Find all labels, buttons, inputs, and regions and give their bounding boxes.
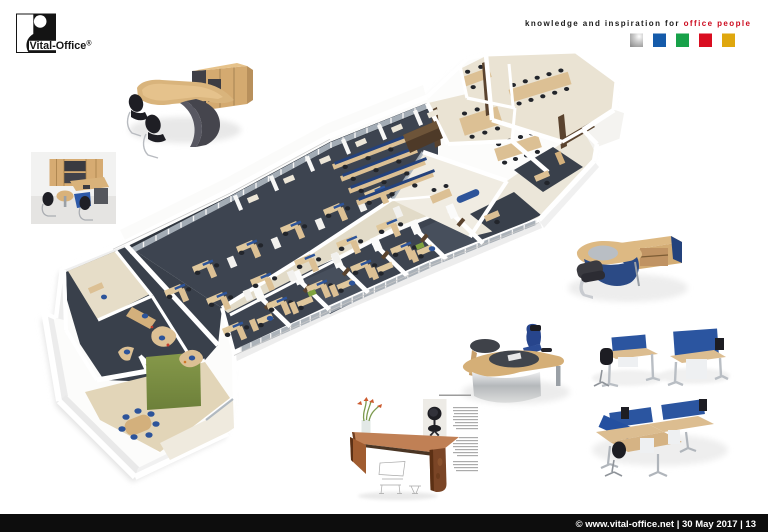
svg-text:knowledge and inspiration for: knowledge and inspiration for office peo… bbox=[525, 19, 751, 28]
svg-text:© www.vital-office.net | 3: © www.vital-office.net | 30 May 2017 | 1… bbox=[576, 519, 756, 530]
svg-text:Vital-Office®: Vital-Office® bbox=[30, 40, 93, 53]
